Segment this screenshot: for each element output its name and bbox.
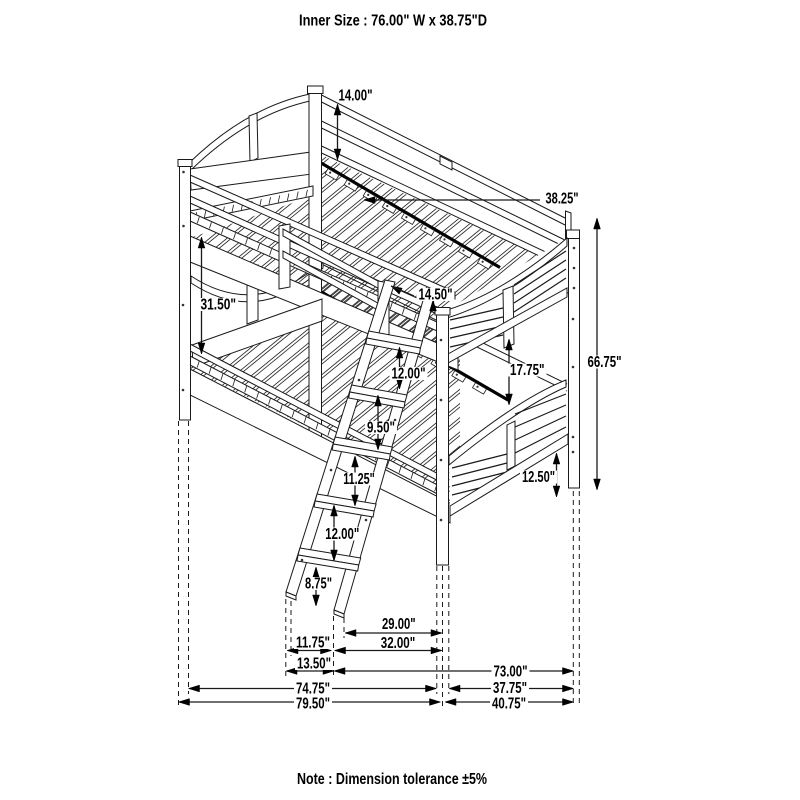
svg-text:Inner Size : 76.00" W x 38.75: Inner Size : 76.00" W x 38.75"D bbox=[299, 13, 487, 30]
svg-text:Note : Dimension tolerance ±5%: Note : Dimension tolerance ±5% bbox=[297, 771, 487, 788]
svg-text:66.75": 66.75" bbox=[588, 354, 622, 371]
svg-text:14.50": 14.50" bbox=[419, 287, 453, 304]
svg-text:32.00": 32.00" bbox=[381, 635, 416, 652]
svg-text:14.00": 14.00" bbox=[339, 88, 373, 105]
svg-text:37.75": 37.75" bbox=[493, 680, 527, 697]
svg-text:12.00": 12.00" bbox=[392, 366, 426, 383]
svg-text:38.25": 38.25" bbox=[546, 191, 579, 208]
svg-text:79.50": 79.50" bbox=[296, 696, 330, 713]
svg-text:29.00": 29.00" bbox=[382, 616, 416, 633]
svg-text:12.00": 12.00" bbox=[325, 526, 359, 543]
svg-text:40.75": 40.75" bbox=[492, 696, 526, 713]
svg-text:8.75": 8.75" bbox=[305, 576, 332, 593]
svg-text:17.75": 17.75" bbox=[510, 362, 545, 379]
svg-text:9.50": 9.50" bbox=[367, 420, 395, 437]
svg-text:11.75": 11.75" bbox=[296, 635, 330, 652]
svg-text:73.00": 73.00" bbox=[494, 664, 528, 681]
svg-text:11.25": 11.25" bbox=[343, 471, 375, 488]
svg-text:31.50": 31.50" bbox=[201, 297, 237, 314]
svg-text:12.50": 12.50" bbox=[522, 469, 555, 486]
svg-text:13.50": 13.50" bbox=[297, 656, 331, 673]
